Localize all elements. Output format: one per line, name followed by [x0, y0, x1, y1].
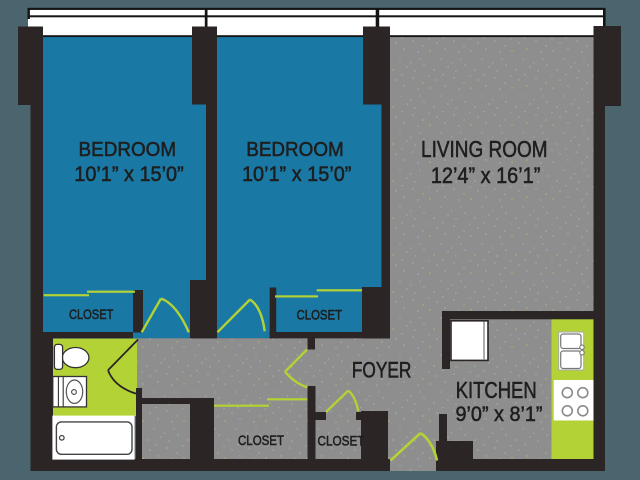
svg-text:FOYER: FOYER	[352, 357, 412, 382]
svg-text:10’1” x 15’0”: 10’1” x 15’0”	[242, 162, 352, 186]
svg-text:BEDROOM: BEDROOM	[246, 138, 344, 161]
svg-text:CLOSET: CLOSET	[318, 432, 365, 448]
svg-text:12’4” x 16’1”: 12’4” x 16’1”	[431, 163, 541, 188]
svg-text:CLOSET: CLOSET	[297, 306, 343, 322]
svg-text:9’0” x 8’1”: 9’0” x 8’1”	[456, 402, 543, 426]
svg-text:CLOSET: CLOSET	[69, 306, 114, 322]
svg-text:CLOSET: CLOSET	[238, 432, 284, 448]
svg-text:10’1” x 15’0”: 10’1” x 15’0”	[74, 162, 184, 186]
svg-text:KITCHEN: KITCHEN	[456, 377, 537, 403]
svg-text:LIVING ROOM: LIVING ROOM	[421, 136, 548, 162]
svg-text:BEDROOM: BEDROOM	[79, 138, 177, 161]
